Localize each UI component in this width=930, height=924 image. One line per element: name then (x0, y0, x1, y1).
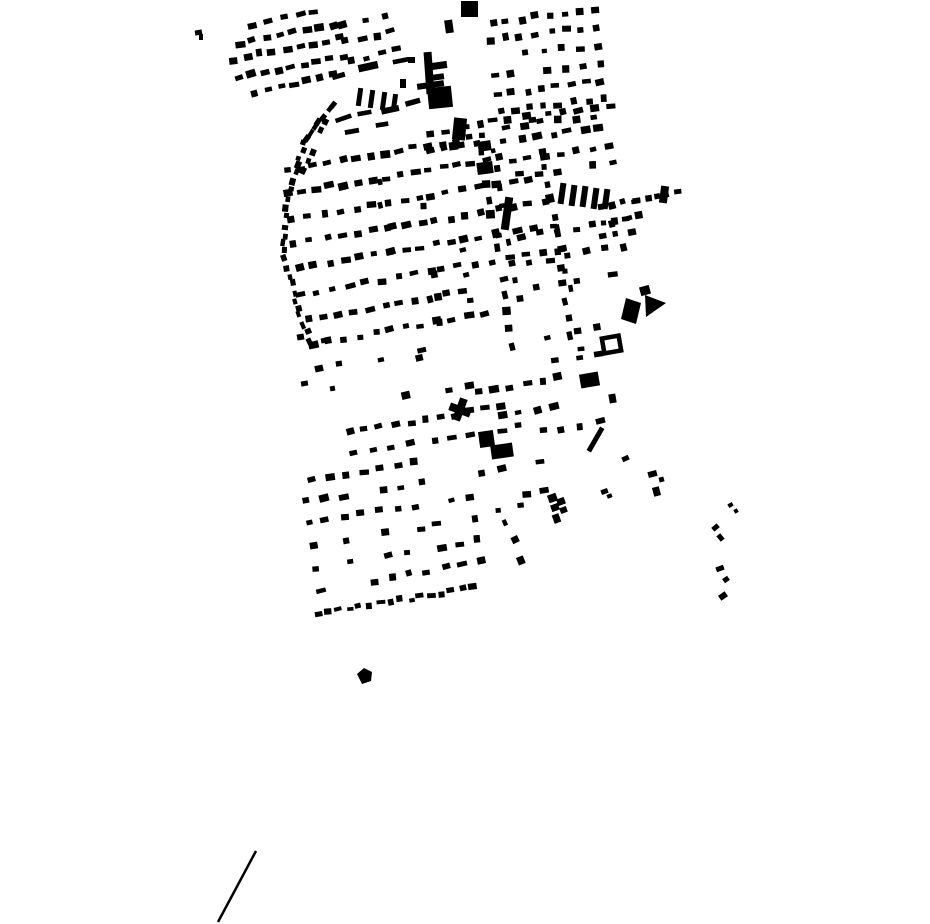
building (440, 164, 449, 169)
building (280, 13, 288, 20)
building (448, 497, 455, 503)
building (266, 48, 275, 56)
building (340, 54, 349, 61)
building (468, 583, 477, 590)
building (335, 113, 352, 123)
building (597, 60, 604, 67)
building (543, 67, 552, 74)
building (590, 104, 600, 112)
building (377, 202, 383, 209)
building (283, 265, 290, 272)
building (544, 335, 551, 341)
building (576, 355, 583, 361)
building (368, 90, 375, 109)
building (260, 69, 270, 77)
building (480, 405, 490, 411)
building (477, 208, 485, 216)
building (314, 364, 324, 372)
building (659, 186, 669, 204)
building (391, 420, 401, 428)
building (380, 150, 391, 159)
building (373, 329, 379, 335)
building (658, 476, 664, 482)
triangle-building (645, 295, 666, 317)
building (256, 48, 263, 56)
building (479, 133, 485, 139)
building (308, 9, 318, 15)
building (512, 227, 523, 235)
building (495, 508, 501, 513)
building (284, 213, 290, 219)
building (490, 19, 498, 27)
building (323, 181, 334, 189)
building (263, 18, 273, 25)
building (369, 447, 377, 453)
building (292, 290, 297, 297)
building (330, 386, 336, 392)
building (427, 593, 436, 598)
building (722, 576, 730, 584)
building (315, 73, 324, 82)
building (553, 168, 562, 176)
building (570, 97, 577, 105)
building (375, 506, 384, 513)
building (322, 39, 331, 46)
building (590, 114, 597, 120)
building (436, 266, 444, 273)
building (525, 89, 532, 96)
building (276, 31, 284, 38)
building (325, 55, 334, 61)
south-blob-building (357, 668, 372, 684)
building (302, 26, 312, 34)
building (415, 592, 424, 598)
building (561, 127, 571, 134)
building (505, 254, 515, 260)
building (426, 295, 433, 303)
building (411, 504, 419, 511)
building (573, 227, 580, 233)
building (380, 92, 387, 111)
building (606, 493, 612, 498)
building (516, 555, 526, 565)
building (577, 346, 584, 351)
building (634, 211, 643, 220)
building (356, 509, 365, 516)
building (536, 229, 544, 236)
building (528, 117, 536, 123)
building (320, 516, 329, 523)
building (557, 426, 565, 434)
building (588, 220, 596, 227)
building (341, 256, 351, 263)
building (467, 298, 474, 304)
building (426, 193, 436, 201)
building (593, 323, 601, 331)
building (380, 486, 388, 493)
building (486, 196, 493, 204)
building (274, 67, 283, 76)
building (354, 206, 362, 213)
building (309, 542, 318, 550)
building (296, 43, 305, 50)
building (408, 144, 417, 150)
building (579, 371, 600, 388)
building (561, 297, 568, 306)
building (360, 278, 370, 286)
building (322, 210, 329, 218)
building (718, 591, 728, 601)
building (382, 176, 391, 181)
building (458, 234, 468, 243)
building (551, 357, 559, 363)
building (377, 278, 386, 285)
building (305, 315, 313, 323)
building (461, 212, 469, 220)
building (409, 598, 415, 603)
building (546, 258, 556, 264)
building (522, 155, 531, 161)
building (511, 107, 520, 114)
building (526, 103, 533, 110)
building (312, 290, 319, 296)
building (384, 325, 394, 333)
building (472, 515, 479, 523)
building (533, 406, 543, 415)
building (418, 478, 425, 485)
building (652, 486, 661, 497)
building (506, 88, 515, 96)
building (410, 168, 421, 175)
building (456, 561, 467, 568)
building (509, 178, 519, 185)
building (535, 459, 544, 465)
building (345, 282, 356, 290)
building (235, 74, 244, 81)
building (343, 537, 350, 544)
building (477, 140, 491, 152)
building (506, 238, 512, 246)
building (318, 493, 329, 503)
building (447, 239, 456, 246)
building (562, 65, 569, 73)
building (245, 69, 257, 79)
building (478, 469, 486, 477)
building (545, 111, 551, 116)
building (284, 167, 291, 173)
building (360, 426, 368, 432)
building (394, 300, 403, 306)
building (396, 273, 403, 280)
building (363, 56, 370, 62)
building (377, 357, 384, 362)
building (520, 122, 530, 130)
building (608, 393, 616, 403)
building (558, 183, 567, 205)
building (302, 497, 310, 504)
building (521, 252, 530, 257)
building (592, 24, 600, 31)
building (639, 285, 651, 296)
building (340, 337, 347, 343)
building (321, 338, 328, 344)
building (536, 118, 544, 124)
building (550, 83, 559, 88)
building (576, 8, 584, 16)
building (579, 63, 587, 70)
building (387, 445, 395, 451)
building (608, 271, 618, 278)
building (608, 201, 617, 210)
building (465, 431, 475, 438)
building (420, 203, 426, 210)
building (494, 165, 501, 173)
building (455, 542, 464, 548)
building (316, 587, 327, 594)
building (315, 611, 323, 617)
building (620, 243, 628, 252)
building (348, 309, 357, 316)
building (432, 437, 439, 444)
building (432, 239, 440, 246)
building (389, 573, 396, 581)
building (582, 79, 591, 84)
building (552, 214, 559, 221)
building (411, 297, 419, 305)
building (338, 493, 349, 501)
building (278, 83, 286, 89)
building (247, 36, 256, 44)
building (334, 606, 342, 612)
building (387, 599, 394, 606)
building (446, 587, 454, 593)
building (502, 306, 511, 315)
building (510, 535, 519, 544)
building (342, 471, 350, 479)
building (307, 476, 316, 483)
building (501, 18, 508, 24)
building (405, 98, 421, 107)
building (566, 331, 573, 341)
building (562, 26, 571, 32)
building (283, 234, 288, 240)
building (308, 41, 318, 48)
building (465, 161, 475, 167)
building (377, 178, 383, 185)
building (577, 423, 583, 430)
building (381, 528, 390, 536)
building (538, 148, 546, 155)
building (344, 128, 359, 135)
building (476, 161, 494, 175)
building (335, 360, 342, 366)
building (509, 342, 516, 351)
road-line (218, 851, 256, 922)
building (491, 73, 499, 78)
building (325, 473, 335, 481)
building (304, 328, 312, 335)
building (285, 196, 290, 202)
building (562, 12, 569, 17)
building (540, 378, 546, 386)
building (540, 102, 546, 108)
building (587, 427, 605, 453)
building (357, 335, 363, 341)
building (359, 469, 369, 475)
building (448, 141, 458, 150)
building (567, 81, 576, 88)
building (297, 189, 307, 195)
building (604, 142, 614, 150)
building (601, 94, 607, 102)
building (477, 120, 484, 129)
building (559, 108, 567, 116)
building (351, 155, 362, 163)
building (463, 272, 470, 278)
building (441, 129, 450, 135)
building (437, 544, 448, 552)
building (503, 116, 512, 124)
building (300, 147, 307, 154)
building (558, 279, 567, 286)
building (461, 1, 478, 17)
building (552, 372, 562, 381)
building (416, 324, 424, 329)
building (354, 230, 362, 238)
building (580, 125, 591, 134)
building (474, 236, 482, 242)
building (674, 189, 682, 195)
building (401, 198, 410, 203)
building (247, 22, 257, 30)
building (392, 57, 409, 65)
building (383, 302, 391, 309)
building (445, 387, 453, 393)
building (401, 391, 411, 400)
building (289, 177, 297, 186)
building (401, 220, 412, 229)
building (405, 439, 415, 447)
building (557, 152, 565, 157)
building (327, 260, 334, 268)
building (311, 186, 321, 193)
building (599, 233, 607, 240)
building (375, 121, 388, 128)
building (486, 210, 495, 219)
building (314, 23, 325, 32)
building (381, 12, 388, 19)
building (531, 131, 542, 140)
building (564, 252, 571, 258)
building (250, 90, 258, 98)
building (594, 43, 603, 51)
building (554, 116, 562, 124)
building (540, 427, 548, 433)
building (431, 61, 448, 70)
building (417, 526, 426, 532)
building (562, 268, 568, 273)
building (301, 76, 311, 85)
building (494, 243, 501, 252)
building (549, 28, 555, 34)
building (476, 556, 486, 565)
building (494, 92, 503, 97)
building (347, 607, 354, 611)
building (301, 380, 309, 386)
building (357, 35, 368, 42)
building (292, 298, 298, 305)
building (498, 107, 505, 114)
building (582, 247, 591, 255)
building (522, 491, 531, 498)
building (339, 155, 348, 163)
building (409, 457, 417, 465)
building (453, 262, 462, 268)
building (501, 197, 514, 231)
building (471, 261, 479, 269)
building (496, 402, 506, 410)
building (385, 199, 392, 206)
building (535, 171, 544, 177)
building (572, 146, 580, 154)
building (518, 16, 526, 25)
building (497, 183, 503, 191)
building (370, 579, 378, 586)
building (362, 18, 369, 23)
building (544, 181, 550, 188)
building (499, 276, 508, 283)
building (319, 314, 328, 321)
building (475, 388, 483, 395)
building (539, 487, 549, 494)
building (295, 156, 301, 162)
building (347, 56, 355, 64)
building (243, 53, 253, 61)
building (502, 519, 508, 526)
building (515, 410, 522, 416)
building (459, 584, 467, 591)
building (354, 252, 364, 261)
building (426, 130, 434, 137)
building (465, 134, 472, 140)
building (371, 251, 378, 257)
building (400, 79, 406, 88)
building (727, 502, 733, 508)
building (647, 470, 657, 478)
building (263, 34, 271, 41)
building (347, 559, 354, 564)
building (458, 185, 467, 192)
building (497, 428, 507, 434)
building (526, 259, 533, 266)
building (424, 168, 431, 173)
building (516, 295, 524, 302)
building (501, 290, 508, 299)
building (338, 232, 348, 239)
building (356, 88, 363, 107)
building (376, 600, 385, 605)
building (601, 244, 609, 251)
building (441, 189, 448, 195)
building (487, 117, 497, 122)
building (386, 249, 394, 256)
building (495, 153, 503, 161)
building (416, 195, 423, 201)
building (341, 514, 349, 521)
building (612, 231, 618, 237)
building (419, 219, 428, 226)
map-canvas (0, 0, 930, 924)
